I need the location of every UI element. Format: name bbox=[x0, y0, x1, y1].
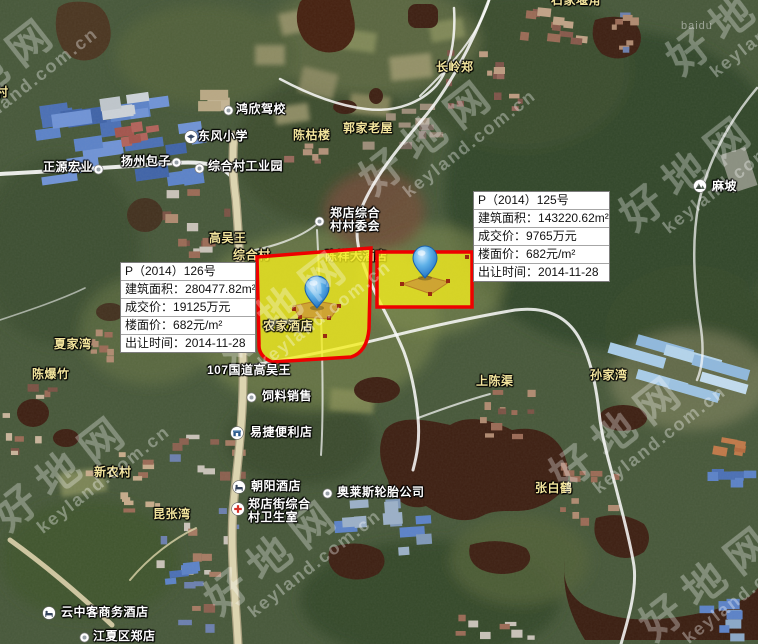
satellite-map-view[interactable]: 综合村陈祥大酒店 bbox=[0, 0, 758, 644]
map-canvas bbox=[0, 0, 758, 644]
